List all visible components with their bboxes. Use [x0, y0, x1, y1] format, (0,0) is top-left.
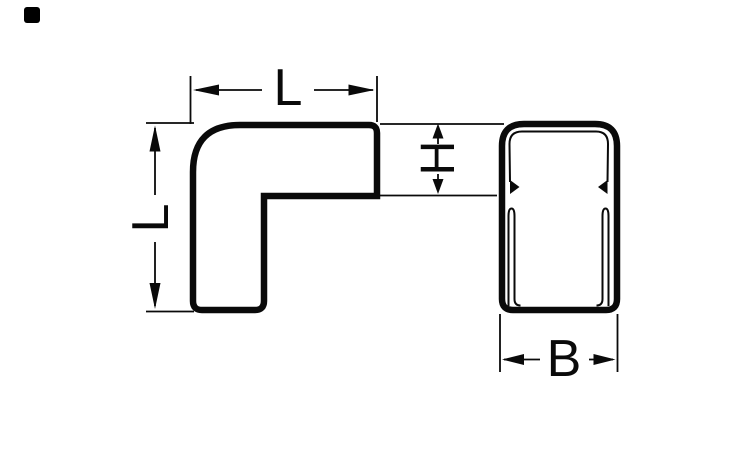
side-view-outline — [502, 124, 617, 310]
arm-height-label: H — [412, 141, 465, 176]
dimension-profile-width: B — [500, 314, 618, 388]
profile-width-label: B — [547, 330, 582, 388]
left-length-arrowhead-up — [150, 126, 161, 152]
top-length-arrowhead-left — [193, 85, 219, 96]
side-view — [502, 124, 617, 310]
profile-width-arrowhead-right — [594, 354, 616, 365]
arm-height-arrowhead-down — [433, 179, 444, 194]
left-length-arrowhead-down — [150, 283, 161, 309]
dimension-left-length: L — [122, 123, 194, 312]
arm-height-arrowhead-up — [433, 124, 444, 139]
diagram-canvas: L L H B — [0, 0, 750, 450]
top-length-label: L — [274, 59, 303, 117]
left-length-label: L — [122, 204, 180, 233]
front-view — [193, 125, 377, 310]
dimension-arm-height: H — [380, 124, 504, 196]
dimension-top-length: L — [191, 59, 378, 124]
profile-width-arrowhead-left — [502, 354, 524, 365]
top-length-arrowhead-right — [349, 85, 375, 96]
front-view-outline — [193, 125, 377, 310]
technical-drawing: L L H B — [0, 0, 750, 450]
